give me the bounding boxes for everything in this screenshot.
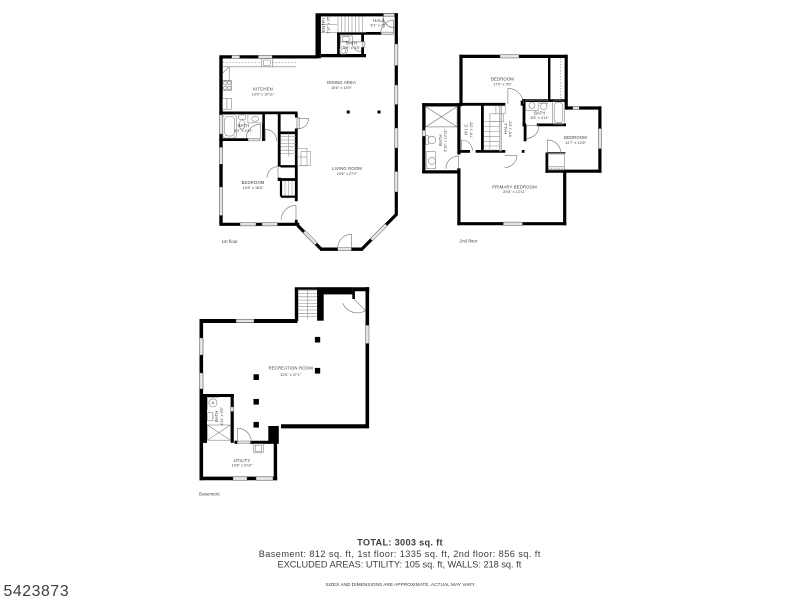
svg-text:ENTRY: ENTRY (321, 17, 326, 32)
svg-text:HALL: HALL (373, 18, 385, 23)
svg-text:PRIMARY BEDROOM: PRIMARY BEDROOM (492, 184, 537, 189)
svg-text:7'6" x 3'5": 7'6" x 3'5" (469, 121, 473, 138)
svg-text:6'1" x 7'1": 6'1" x 7'1" (370, 24, 387, 28)
svg-text:TOTAL: 3003 sq. ft: TOTAL: 3003 sq. ft (357, 538, 443, 548)
svg-text:15'6" x 15'9": 15'6" x 15'9" (331, 86, 353, 90)
svg-text:BEDROOM: BEDROOM (241, 180, 264, 185)
svg-text:HALL: HALL (503, 122, 508, 134)
svg-text:Basement: 812 sq. ft, 1st floo: Basement: 812 sq. ft, 1st floor: 1335 sq… (259, 549, 541, 559)
svg-text:1st floor: 1st floor (222, 239, 239, 244)
svg-text:BATH: BATH (238, 123, 250, 128)
svg-text:6'10" x 12'11": 6'10" x 12'11" (444, 128, 448, 151)
svg-text:5423873: 5423873 (4, 583, 70, 600)
svg-text:EXCLUDED AREAS: UTILITY: 105 s: EXCLUDED AREAS: UTILITY: 105 sq. ft, WAL… (278, 559, 522, 569)
svg-text:17'0" x 9'5": 17'0" x 9'5" (493, 83, 512, 87)
svg-text:32'6" x 27'1": 32'6" x 27'1" (280, 373, 302, 377)
svg-text:8'5" x 4'11": 8'5" x 4'11" (531, 116, 550, 120)
svg-text:BATH: BATH (534, 111, 546, 116)
svg-text:14'8" x 16'6": 14'8" x 16'6" (243, 186, 265, 190)
svg-text:BEDROOM: BEDROOM (564, 135, 587, 140)
svg-text:DINING AREA: DINING AREA (327, 80, 356, 85)
svg-text:2nd floor: 2nd floor (459, 238, 477, 243)
svg-text:6'6" x 9'2": 6'6" x 9'2" (509, 120, 513, 137)
svg-text:W.I.C: W.I.C (464, 124, 469, 135)
svg-text:20'8" x 13'11": 20'8" x 13'11" (503, 190, 526, 194)
svg-text:13'0" x 10'11": 13'0" x 10'11" (252, 93, 275, 97)
svg-text:14'8" x 6'10": 14'8" x 6'10" (232, 464, 254, 468)
svg-text:LIVING ROOM: LIVING ROOM (332, 166, 362, 171)
svg-text:BATH: BATH (214, 410, 219, 422)
svg-text:8'2" x 4'11": 8'2" x 4'11" (234, 129, 253, 133)
svg-text:RECREATION ROOM: RECREATION ROOM (269, 366, 314, 371)
svg-text:BATH: BATH (346, 41, 358, 46)
svg-text:7'10" x 3'5": 7'10" x 3'5" (327, 14, 331, 33)
svg-text:BEDROOM: BEDROOM (491, 77, 514, 82)
svg-text:BATH: BATH (438, 134, 443, 146)
svg-text:19'6" x 27'2": 19'6" x 27'2" (337, 172, 359, 176)
svg-text:SIZES AND DIMENSIONS ARE APPRO: SIZES AND DIMENSIONS ARE APPROXIMATE, AC… (325, 582, 475, 588)
svg-text:4'11" x 9'5": 4'11" x 9'5" (220, 406, 224, 425)
svg-text:6'9" x 4'5": 6'9" x 4'5" (343, 46, 360, 50)
svg-text:14'7" x 12'6": 14'7" x 12'6" (565, 141, 587, 145)
svg-text:KITCHEN: KITCHEN (253, 87, 273, 92)
svg-text:Basement: Basement (199, 491, 220, 496)
svg-text:UTILITY: UTILITY (234, 458, 251, 463)
